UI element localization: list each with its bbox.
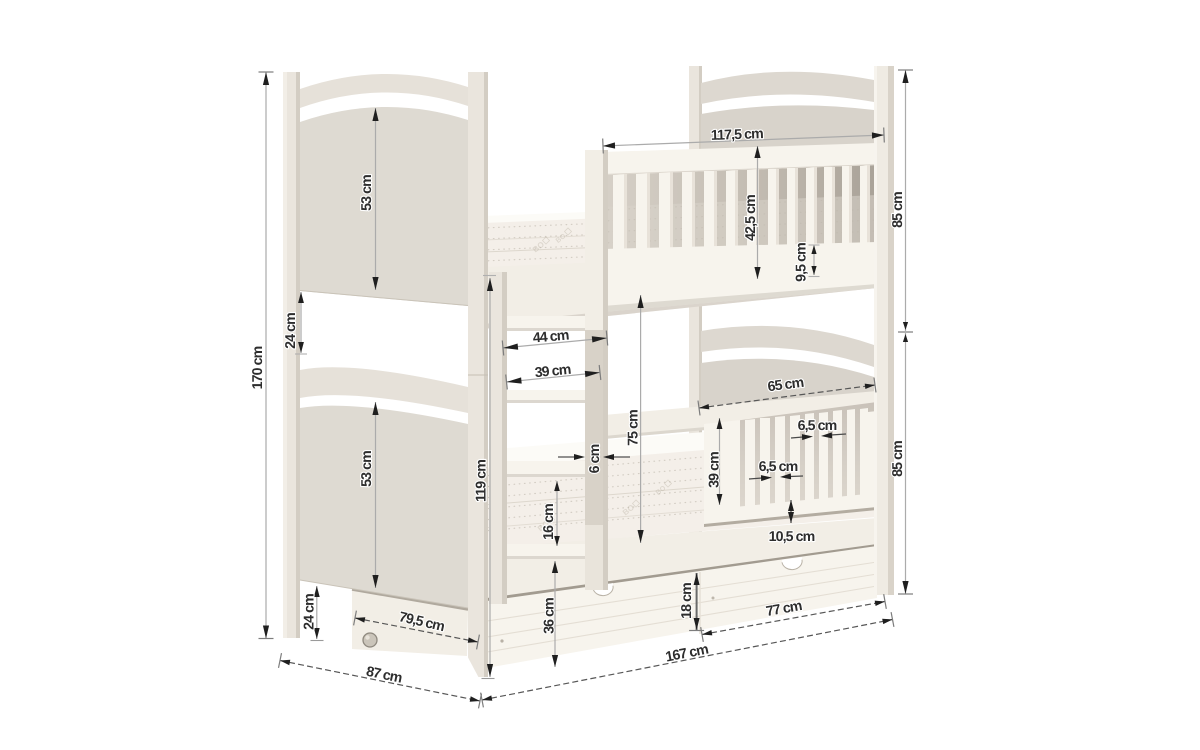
svg-text:119 cm: 119 cm [474,460,490,502]
svg-text:6 cm: 6 cm [587,444,603,473]
svg-text:53 cm: 53 cm [359,175,375,211]
svg-text:6,5 cm: 6,5 cm [798,418,837,434]
svg-text:53 cm: 53 cm [359,451,375,487]
svg-text:42,5 cm: 42,5 cm [743,195,759,241]
svg-text:36 cm: 36 cm [542,598,558,634]
svg-text:24 cm: 24 cm [302,594,318,630]
svg-text:44 cm: 44 cm [532,327,569,346]
svg-text:10,5 cm: 10,5 cm [769,529,815,545]
svg-text:75 cm: 75 cm [626,410,642,446]
svg-text:6,5 cm: 6,5 cm [759,459,798,475]
svg-text:24 cm: 24 cm [283,313,299,349]
svg-text:117,5 cm: 117,5 cm [711,126,764,144]
svg-text:39 cm: 39 cm [707,452,723,488]
svg-text:18 cm: 18 cm [679,583,695,619]
svg-text:9,5 cm: 9,5 cm [794,243,810,282]
svg-text:16 cm: 16 cm [541,504,557,540]
svg-text:85 cm: 85 cm [890,441,906,477]
svg-text:85 cm: 85 cm [890,192,906,228]
svg-text:170 cm: 170 cm [250,346,266,389]
